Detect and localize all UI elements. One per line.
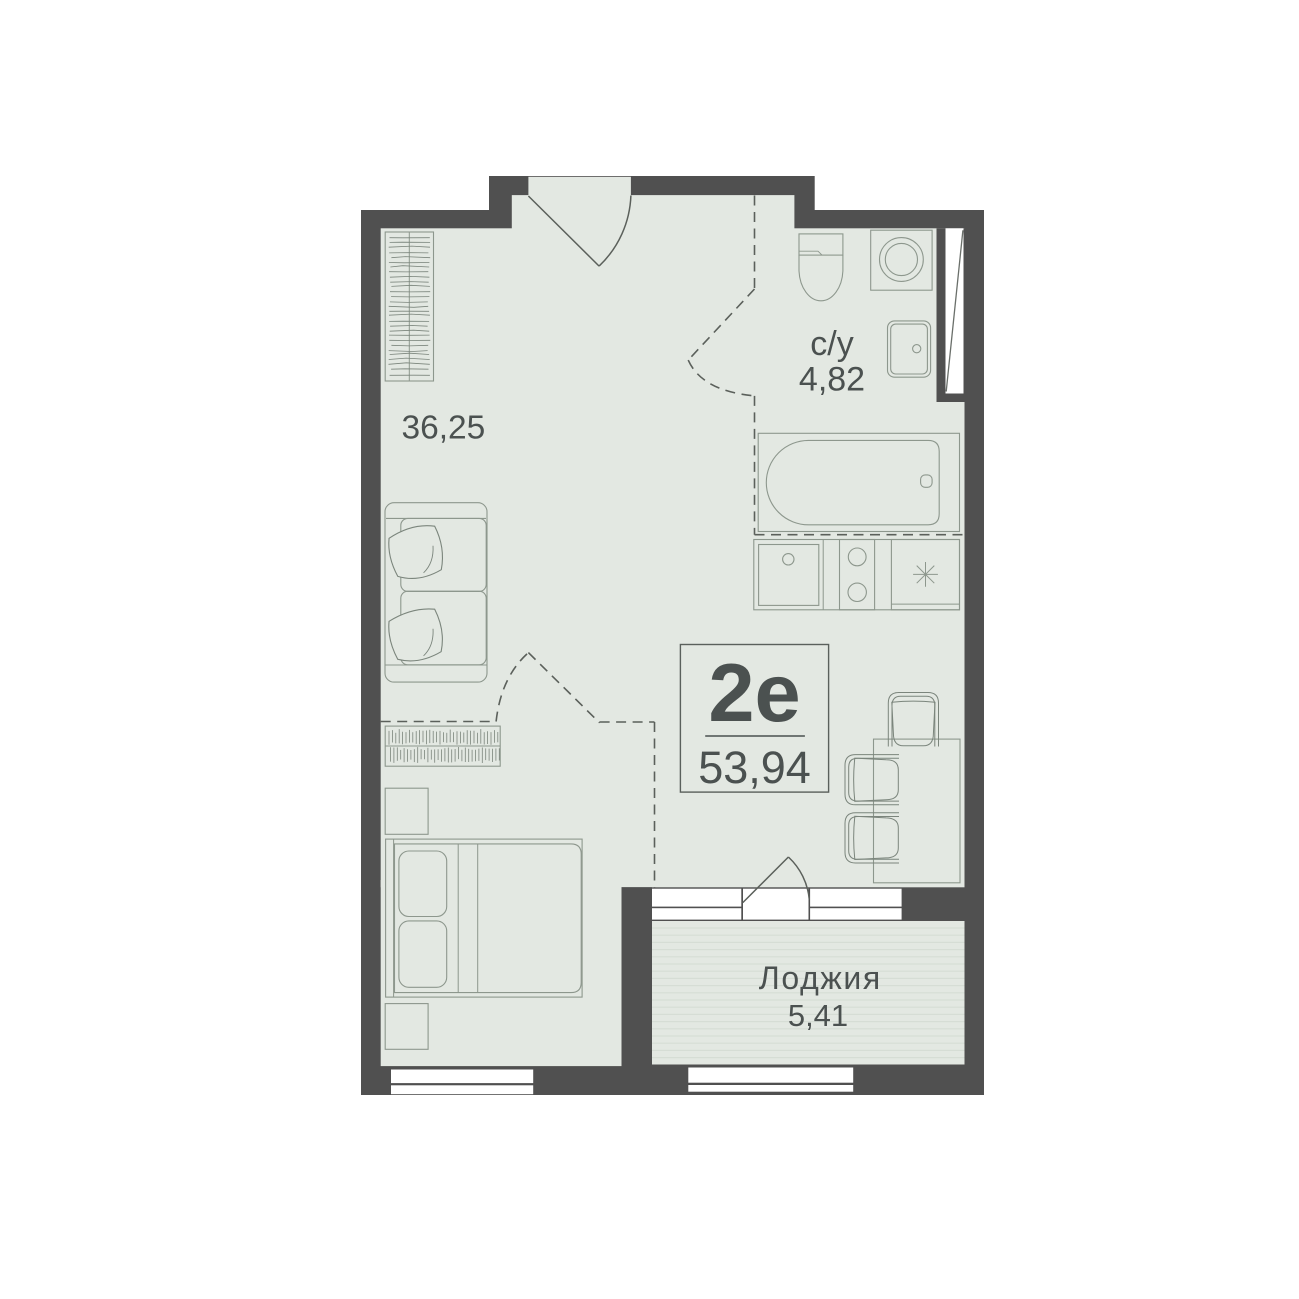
svg-text:4,82: 4,82 bbox=[799, 361, 865, 399]
svg-text:2е: 2е bbox=[708, 646, 800, 739]
svg-text:5,41: 5,41 bbox=[788, 998, 848, 1033]
svg-text:36,25: 36,25 bbox=[401, 410, 485, 447]
svg-text:Лоджия: Лоджия bbox=[759, 960, 882, 996]
svg-text:53,94: 53,94 bbox=[698, 742, 811, 793]
svg-text:с/у: с/у bbox=[810, 325, 853, 363]
